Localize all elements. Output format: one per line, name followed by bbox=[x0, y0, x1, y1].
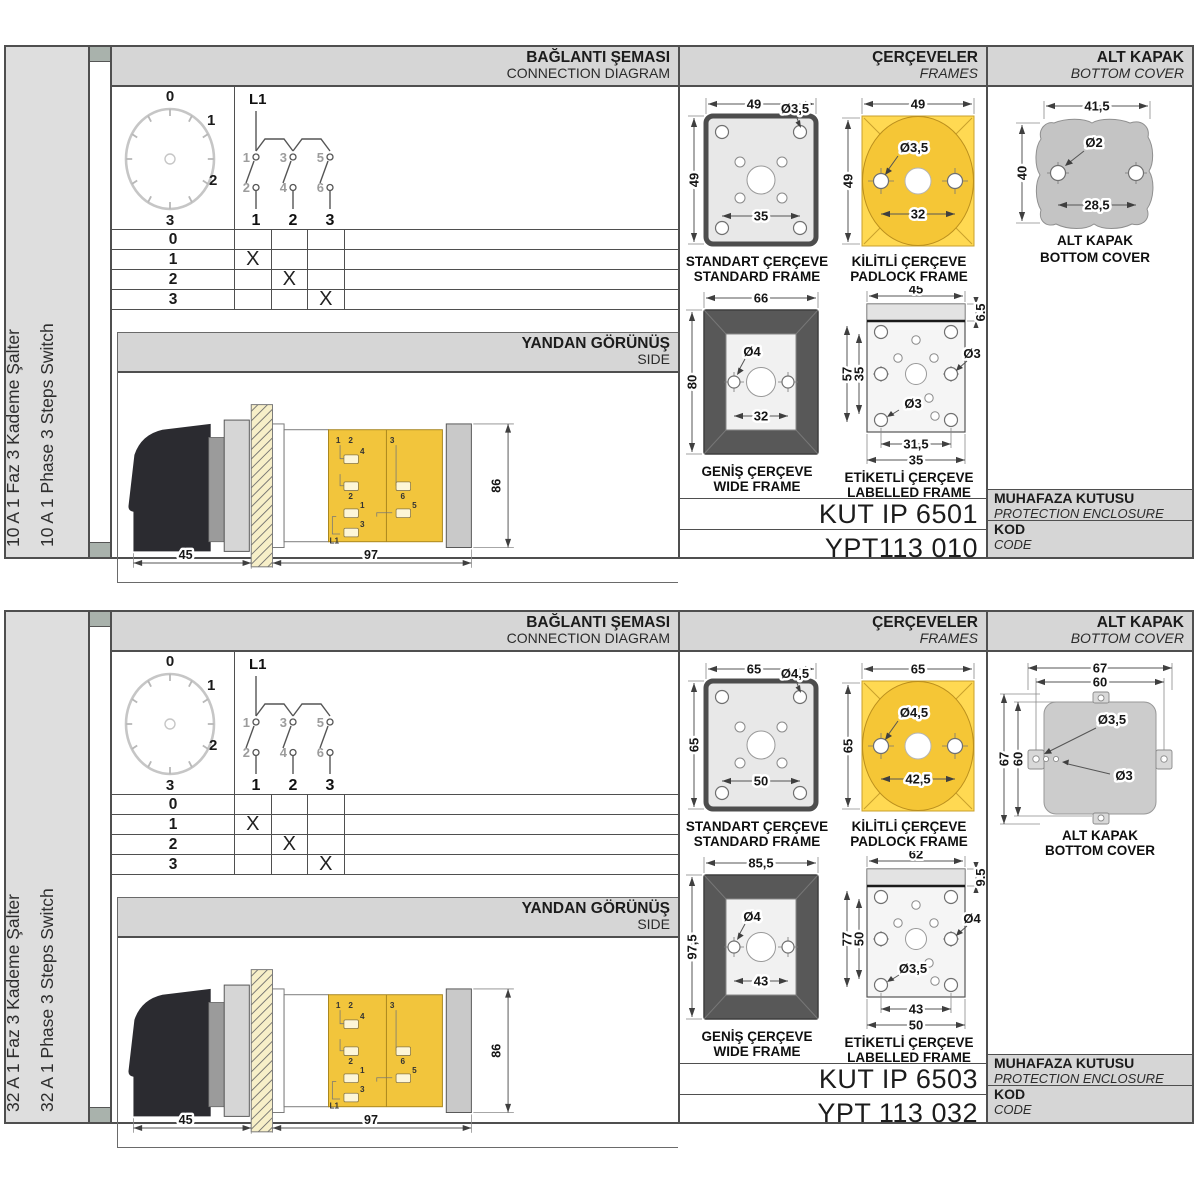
wide-frame-cell: 85,5 97,5 Ø4 bbox=[681, 851, 833, 1063]
contact-mark: X bbox=[307, 290, 345, 309]
row-position: 2 bbox=[112, 835, 234, 854]
enclosure-label-tr: MUHAFAZA KUTUSU bbox=[994, 491, 1186, 507]
dim-height: 86 bbox=[489, 1044, 503, 1058]
caption-tr: STANDART ÇERÇEVE bbox=[686, 819, 828, 834]
bottom-cover-drawing: 41,5 40 Ø2 28,5 ALT KAPAK BOTTOM COVER bbox=[992, 93, 1188, 265]
connection-column: BAĞLANTI ŞEMASI CONNECTION DIAGRAM bbox=[112, 47, 678, 557]
side-view-drawing: 1 2 4 2 3 6 1 5 3 L1 bbox=[118, 944, 678, 1142]
rating-label-tr: 10 A 1 Faz 3 Kademe Şalter bbox=[3, 329, 24, 547]
circuit-schematic: L1 bbox=[235, 87, 675, 227]
caption-tr: KİLİTLİ ÇERÇEVE bbox=[852, 819, 967, 834]
cover-title-en: BOTTOM COVER bbox=[996, 631, 1184, 647]
enclosure-label-tr: MUHAFAZA KUTUSU bbox=[994, 1056, 1186, 1072]
dial-pos-3: 3 bbox=[166, 212, 174, 227]
connection-column: BAĞLANTI ŞEMASI CONNECTION DIAGRAM bbox=[112, 612, 678, 1122]
frames-header: ÇERÇEVELER FRAMES bbox=[680, 612, 986, 652]
padlock-frame-drawing: 65 65 Ø4,5 4 bbox=[834, 655, 984, 851]
contact-mark: X bbox=[271, 835, 308, 854]
frames-column: ÇERÇEVELER FRAMES 49 49 bbox=[678, 47, 986, 557]
side-view-box: YANDAN GÖRÜNÜŞ SIDE bbox=[117, 897, 678, 1148]
dim-label: 65 bbox=[687, 738, 702, 752]
row-position: 3 bbox=[112, 290, 234, 309]
dim-label: 43 bbox=[909, 1002, 923, 1017]
contact-mark bbox=[271, 815, 308, 834]
wide-frame-cell: 66 80 Ø4 32 bbox=[681, 286, 833, 498]
terminal-label: 3 bbox=[390, 436, 395, 445]
padlock-frame-cell: 49 49 Ø3,5 3 bbox=[833, 90, 985, 286]
dim-front: 45 bbox=[179, 548, 193, 562]
dim-label: 43 bbox=[754, 974, 768, 989]
dim-label: 65 bbox=[911, 662, 925, 677]
cover-drawing-area: 41,5 40 Ø2 28,5 ALT KAPAK BOTTOM COVER bbox=[988, 87, 1192, 265]
dial-pos-3: 3 bbox=[166, 777, 174, 792]
contact-mark bbox=[234, 855, 271, 874]
dim-front: 45 bbox=[179, 1113, 193, 1127]
caption-tr: ETİKETLİ ÇERÇEVE bbox=[844, 470, 973, 485]
terminal-label: 2 bbox=[348, 492, 353, 501]
hole-label: Ø3 bbox=[963, 346, 980, 361]
labelled-frame-cell: 45 6,5 57 35 bbox=[833, 286, 985, 498]
caption-tr: ALT KAPAK bbox=[1062, 828, 1138, 843]
phase-label: L1 bbox=[249, 91, 267, 108]
labelled-frame-drawing: 62 9,5 77 50 bbox=[833, 851, 985, 1063]
position-row: 3 X bbox=[112, 855, 678, 875]
bottom-cover-column: ALT KAPAK BOTTOM COVER 41,5 40 Ø2 28,5 bbox=[986, 47, 1192, 557]
connection-title-tr: BAĞLANTI ŞEMASI bbox=[120, 49, 670, 66]
caption-en: LABELLED FRAME bbox=[847, 1050, 971, 1063]
dim-label: 35 bbox=[909, 453, 923, 468]
cover-title-en: BOTTOM COVER bbox=[996, 66, 1184, 82]
rating-label-en: 10 A 1 Phase 3 Steps Switch bbox=[37, 323, 58, 547]
contact-4: 4 bbox=[280, 745, 288, 760]
dim-label: 50 bbox=[754, 774, 768, 789]
dim-label: 80 bbox=[685, 375, 700, 389]
dim-label: 35 bbox=[852, 367, 867, 381]
side-view-drawing-area: 1 2 4 2 3 6 1 5 3 L1 bbox=[118, 938, 678, 1147]
contact-mark bbox=[307, 230, 345, 249]
dim-label: 6,5 bbox=[973, 303, 985, 321]
dial-cell: 0 1 2 3 bbox=[112, 652, 235, 794]
pole-3: 3 bbox=[326, 212, 335, 227]
pole-2: 2 bbox=[289, 777, 298, 792]
dim-label: 9,5 bbox=[973, 868, 985, 886]
product-code: YPT 113 032 bbox=[680, 1094, 986, 1131]
terminal-label: 1 bbox=[336, 1001, 341, 1010]
caption-en: PADLOCK FRAME bbox=[850, 834, 968, 849]
hole-label: Ø3,5 bbox=[900, 140, 928, 155]
connection-title-en: CONNECTION DIAGRAM bbox=[120, 631, 670, 647]
schematic-cell: L1 bbox=[235, 652, 678, 794]
pole-1: 1 bbox=[252, 212, 261, 227]
dim-label: 49 bbox=[687, 173, 702, 187]
product-section-32a: 32 A 1 Faz 3 Kademe Şalter 32 A 1 Phase … bbox=[4, 610, 1194, 1124]
terminal-label: 6 bbox=[401, 492, 406, 501]
dim-label: 60 bbox=[1093, 675, 1107, 690]
terminal-label: 1 bbox=[360, 1066, 365, 1075]
row-position: 2 bbox=[112, 270, 234, 289]
bottom-cover-column: ALT KAPAK BOTTOM COVER 67 60 67 bbox=[986, 612, 1192, 1122]
hole-label: Ø4,5 bbox=[781, 666, 809, 681]
cover-drawing-area: 67 60 67 60 bbox=[988, 652, 1192, 856]
circuit-schematic: L1 bbox=[235, 652, 675, 792]
dial-pos-0: 0 bbox=[166, 88, 174, 105]
contact-mark bbox=[271, 795, 308, 814]
position-row: 3 X bbox=[112, 290, 678, 310]
contact-mark bbox=[234, 230, 271, 249]
rating-label-tr: 32 A 1 Faz 3 Kademe Şalter bbox=[3, 894, 24, 1112]
terminal-label: 1 bbox=[360, 501, 365, 510]
standard-frame-cell: 49 49 Ø3,5 35 STANDART ÇERÇEVE bbox=[681, 90, 833, 286]
connection-header: BAĞLANTI ŞEMASI CONNECTION DIAGRAM bbox=[112, 47, 678, 87]
terminal-label: 5 bbox=[412, 501, 417, 510]
side-view-header: YANDAN GÖRÜNÜŞ SIDE bbox=[118, 333, 678, 373]
dim-label: 67 bbox=[1093, 661, 1107, 676]
product-code: YPT113 010 bbox=[680, 529, 986, 566]
contact-5: 5 bbox=[317, 715, 324, 730]
switch-handle bbox=[128, 424, 210, 551]
position-row: 0 bbox=[112, 230, 678, 250]
contact-2: 2 bbox=[243, 745, 250, 760]
position-table: 0 1 X 2 X 3 bbox=[112, 230, 678, 310]
hole-label: Ø3 bbox=[904, 396, 921, 411]
enclosure-label-box: MUHAFAZA KUTUSU PROTECTION ENCLOSURE bbox=[988, 489, 1192, 520]
labelled-frame-cell: 62 9,5 77 50 bbox=[833, 851, 985, 1063]
frames-header: ÇERÇEVELER FRAMES bbox=[680, 47, 986, 87]
frames-title-en: FRAMES bbox=[688, 631, 978, 647]
frames-column: ÇERÇEVELER FRAMES 65 65 bbox=[678, 612, 986, 1122]
dim-label: 62 bbox=[909, 851, 923, 862]
dim-label: 66 bbox=[754, 291, 768, 306]
side-view-box: YANDAN GÖRÜNÜŞ SIDE bbox=[117, 332, 678, 583]
hole-label: Ø4 bbox=[743, 344, 761, 359]
standard-frame-cell: 65 65 Ø4,5 50 STANDART ÇERÇEVE bbox=[681, 655, 833, 851]
caption-en: BOTTOM COVER bbox=[1040, 250, 1150, 265]
frames-title-tr: ÇERÇEVELER bbox=[688, 49, 978, 66]
labelled-frame-drawing: 45 6,5 57 35 bbox=[833, 286, 985, 498]
contact-mark: X bbox=[234, 250, 271, 269]
position-row: 0 bbox=[112, 795, 678, 815]
contact-mark bbox=[271, 290, 308, 309]
terminal-label: L1 bbox=[329, 537, 339, 546]
dim-label: 65 bbox=[841, 739, 856, 753]
contact-2: 2 bbox=[243, 180, 250, 195]
terminal-label: 3 bbox=[390, 1001, 395, 1010]
dim-label: 35 bbox=[754, 209, 768, 224]
dim-label: 41,5 bbox=[1084, 99, 1109, 114]
binding-strip bbox=[90, 47, 112, 557]
hole-label: Ø3 bbox=[1115, 768, 1132, 783]
caption-tr: ETİKETLİ ÇERÇEVE bbox=[844, 1035, 973, 1050]
binding-block-top bbox=[90, 612, 110, 627]
caption-en: STANDARD FRAME bbox=[694, 269, 821, 284]
dim-body: 97 bbox=[364, 1113, 378, 1127]
padlock-frame-cell: 65 65 Ø4,5 4 bbox=[833, 655, 985, 851]
side-title-tr: YANDAN GÖRÜNÜŞ bbox=[126, 900, 670, 917]
contact-mark bbox=[271, 250, 308, 269]
terminal-label: 4 bbox=[360, 447, 365, 456]
dim-label: 32 bbox=[911, 207, 925, 222]
dim-label: 49 bbox=[841, 174, 856, 188]
dim-label: 97,5 bbox=[685, 934, 700, 959]
enclosure-label-box: MUHAFAZA KUTUSU PROTECTION ENCLOSURE bbox=[988, 1054, 1192, 1085]
standard-frame-drawing: 65 65 Ø4,5 50 STANDART ÇERÇEVE bbox=[682, 655, 832, 851]
diagram-area: 0 1 2 3 L1 bbox=[112, 87, 678, 230]
caption-tr: GENİŞ ÇERÇEVE bbox=[701, 464, 812, 479]
terminal-label: 2 bbox=[348, 436, 353, 445]
cover-header: ALT KAPAK BOTTOM COVER bbox=[988, 612, 1192, 652]
terminal-label: 3 bbox=[360, 1085, 365, 1094]
binding-block-bottom bbox=[90, 542, 110, 557]
terminal-label: 6 bbox=[401, 1057, 406, 1066]
position-row: 1 X bbox=[112, 250, 678, 270]
caption-tr: ALT KAPAK bbox=[1057, 233, 1133, 248]
side-view-drawing-area: 1 2 4 2 3 6 1 5 3 L1 bbox=[118, 373, 678, 582]
row-position: 0 bbox=[112, 230, 234, 249]
caption-en: WIDE FRAME bbox=[714, 479, 801, 494]
caption-en: WIDE FRAME bbox=[714, 1044, 801, 1059]
caption-tr: STANDART ÇERÇEVE bbox=[686, 254, 828, 269]
terminal-label: 1 bbox=[336, 436, 341, 445]
dial-pos-2: 2 bbox=[209, 737, 217, 754]
caption-tr: GENİŞ ÇERÇEVE bbox=[701, 1029, 812, 1044]
contact-mark bbox=[307, 815, 345, 834]
contact-6: 6 bbox=[317, 745, 324, 760]
contact-4: 4 bbox=[280, 180, 288, 195]
schematic-cell: L1 bbox=[235, 87, 678, 229]
caption-en: STANDARD FRAME bbox=[694, 834, 821, 849]
contact-3: 3 bbox=[280, 150, 287, 165]
pole-1: 1 bbox=[252, 777, 261, 792]
code-label-en: CODE bbox=[994, 1103, 1186, 1118]
phase-label: L1 bbox=[249, 656, 267, 673]
side-title-en: SIDE bbox=[126, 352, 670, 368]
binding-strip bbox=[90, 612, 112, 1122]
contact-mark bbox=[271, 855, 308, 874]
frames-title-tr: ÇERÇEVELER bbox=[688, 614, 978, 631]
contact-6: 6 bbox=[317, 180, 324, 195]
dim-label: 49 bbox=[911, 97, 925, 112]
contact-mark bbox=[234, 270, 271, 289]
contact-1: 1 bbox=[243, 150, 250, 165]
dial-diagram: 0 1 2 3 bbox=[112, 87, 234, 227]
caption-en: BOTTOM COVER bbox=[1045, 843, 1155, 856]
caption-tr: KİLİTLİ ÇERÇEVE bbox=[852, 254, 967, 269]
contact-mark bbox=[234, 835, 271, 854]
code-label-en: CODE bbox=[994, 538, 1186, 553]
contact-5: 5 bbox=[317, 150, 324, 165]
dim-label: 49 bbox=[747, 97, 761, 112]
terminal-label: 5 bbox=[412, 1066, 417, 1075]
position-table: 0 1 X 2 X 3 bbox=[112, 795, 678, 875]
pole-2: 2 bbox=[289, 212, 298, 227]
terminal-label: 4 bbox=[360, 1012, 365, 1021]
dim-body: 97 bbox=[364, 548, 378, 562]
position-row: 2 X bbox=[112, 835, 678, 855]
contact-3: 3 bbox=[280, 715, 287, 730]
dial-pos-0: 0 bbox=[166, 653, 174, 670]
dim-label: 50 bbox=[909, 1018, 923, 1033]
binding-block-bottom bbox=[90, 1107, 110, 1122]
code-label-box: KOD CODE bbox=[988, 520, 1192, 557]
dim-label: 31,5 bbox=[903, 437, 928, 452]
side-view-drawing: 1 2 4 2 3 6 1 5 3 L1 bbox=[118, 379, 678, 577]
dim-label: 60 bbox=[1011, 752, 1026, 766]
dim-label: 67 bbox=[997, 752, 1012, 766]
wide-frame-drawing: 66 80 Ø4 32 bbox=[682, 286, 832, 496]
binding-block-top bbox=[90, 47, 110, 62]
dim-label: 32 bbox=[754, 409, 768, 424]
rating-sidebar: 10 A 1 Faz 3 Kademe Şalter 10 A 1 Phase … bbox=[6, 47, 90, 557]
enclosure-code: KUT IP 6501 bbox=[680, 498, 986, 529]
hole-label: Ø4,5 bbox=[900, 705, 928, 720]
hole-label: Ø2 bbox=[1085, 135, 1102, 150]
panel-cross-section bbox=[251, 970, 272, 1132]
contact-mark: X bbox=[234, 815, 271, 834]
contact-mark bbox=[307, 250, 345, 269]
cover-title-tr: ALT KAPAK bbox=[996, 49, 1184, 66]
dim-label: 65 bbox=[747, 662, 761, 677]
terminal-label: L1 bbox=[329, 1102, 339, 1111]
frame-drawings: 65 65 Ø4,5 50 STANDART ÇERÇEVE bbox=[680, 652, 986, 1063]
contact-mark bbox=[307, 270, 345, 289]
dial-diagram: 0 1 2 3 bbox=[112, 652, 234, 792]
dim-label: 40 bbox=[1015, 166, 1030, 180]
row-position: 1 bbox=[112, 250, 234, 269]
contact-mark bbox=[271, 230, 308, 249]
rating-sidebar: 32 A 1 Faz 3 Kademe Şalter 32 A 1 Phase … bbox=[6, 612, 90, 1122]
terminal-label: 3 bbox=[360, 520, 365, 529]
frame-drawings: 49 49 Ø3,5 35 STANDART ÇERÇEVE bbox=[680, 87, 986, 498]
cover-header: ALT KAPAK BOTTOM COVER bbox=[988, 47, 1192, 87]
product-section-10a: 10 A 1 Faz 3 Kademe Şalter 10 A 1 Phase … bbox=[4, 45, 1194, 559]
row-position: 0 bbox=[112, 795, 234, 814]
code-label-tr: KOD bbox=[994, 522, 1186, 538]
panel-cross-section bbox=[251, 405, 272, 567]
dial-cell: 0 1 2 3 bbox=[112, 87, 235, 229]
connection-header: BAĞLANTI ŞEMASI CONNECTION DIAGRAM bbox=[112, 612, 678, 652]
hole-label: Ø3,5 bbox=[899, 961, 927, 976]
wide-frame-drawing: 85,5 97,5 Ø4 bbox=[682, 851, 832, 1061]
side-view-header: YANDAN GÖRÜNÜŞ SIDE bbox=[118, 898, 678, 938]
position-row: 2 X bbox=[112, 270, 678, 290]
cover-title-tr: ALT KAPAK bbox=[996, 614, 1184, 631]
code-label-tr: KOD bbox=[994, 1087, 1186, 1103]
pole-3: 3 bbox=[326, 777, 335, 792]
switch-handle bbox=[128, 989, 210, 1116]
dim-height: 86 bbox=[489, 479, 503, 493]
rating-label-en: 32 A 1 Phase 3 Steps Switch bbox=[37, 888, 58, 1112]
connection-title-en: CONNECTION DIAGRAM bbox=[120, 66, 670, 82]
contact-1: 1 bbox=[243, 715, 250, 730]
dim-label: 50 bbox=[852, 932, 867, 946]
terminal-label: 2 bbox=[348, 1001, 353, 1010]
contact-mark: X bbox=[307, 855, 345, 874]
enclosure-code: KUT IP 6503 bbox=[680, 1063, 986, 1094]
row-position: 3 bbox=[112, 855, 234, 874]
hole-label: Ø3,5 bbox=[1098, 712, 1126, 727]
frames-title-en: FRAMES bbox=[688, 66, 978, 82]
padlock-frame-drawing: 49 49 Ø3,5 3 bbox=[834, 90, 984, 286]
side-title-tr: YANDAN GÖRÜNÜŞ bbox=[126, 335, 670, 352]
dial-pos-1: 1 bbox=[207, 677, 215, 694]
side-title-en: SIDE bbox=[126, 917, 670, 933]
diagram-area: 0 1 2 3 L1 bbox=[112, 652, 678, 795]
row-position: 1 bbox=[112, 815, 234, 834]
hole-label: Ø4 bbox=[963, 911, 981, 926]
hole-label: Ø3,5 bbox=[781, 101, 809, 116]
contact-mark bbox=[234, 290, 271, 309]
standard-frame-drawing: 49 49 Ø3,5 35 STANDART ÇERÇEVE bbox=[682, 90, 832, 286]
hole-label: Ø4 bbox=[743, 909, 761, 924]
bottom-cover-drawing: 67 60 67 60 bbox=[992, 658, 1188, 856]
contact-mark bbox=[234, 795, 271, 814]
terminal-label: 2 bbox=[348, 1057, 353, 1066]
caption-en: PADLOCK FRAME bbox=[850, 269, 968, 284]
contact-mark bbox=[307, 835, 345, 854]
contact-mark: X bbox=[271, 270, 308, 289]
dim-label: 85,5 bbox=[748, 856, 773, 871]
position-row: 1 X bbox=[112, 815, 678, 835]
code-label-box: KOD CODE bbox=[988, 1085, 1192, 1122]
connection-title-tr: BAĞLANTI ŞEMASI bbox=[120, 614, 670, 631]
contact-mark bbox=[307, 795, 345, 814]
dim-label: 45 bbox=[909, 286, 923, 297]
dim-label: 28,5 bbox=[1084, 198, 1109, 213]
caption-en: LABELLED FRAME bbox=[847, 485, 971, 498]
dial-pos-2: 2 bbox=[209, 172, 217, 189]
dim-label: 42,5 bbox=[905, 772, 930, 787]
dial-pos-1: 1 bbox=[207, 112, 215, 129]
